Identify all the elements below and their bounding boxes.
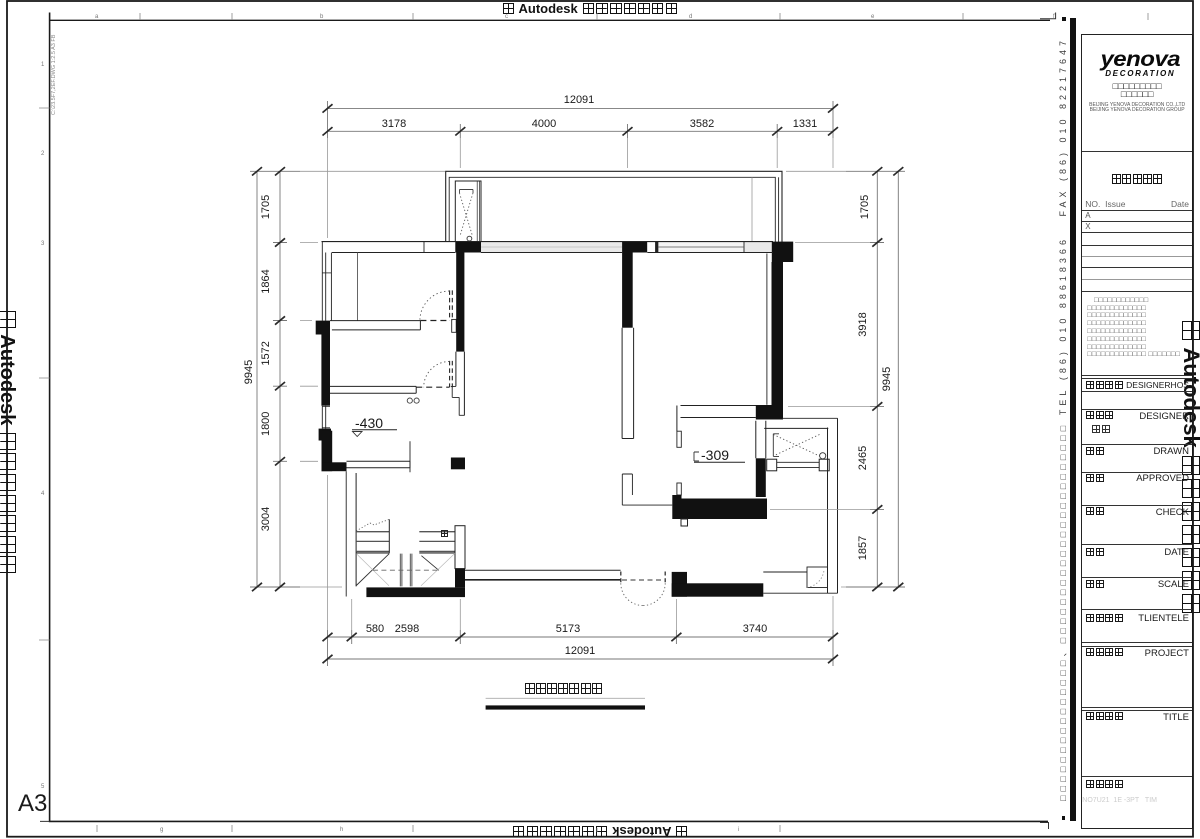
svg-text:2: 2 bbox=[41, 151, 45, 157]
svg-text:1: 1 bbox=[41, 62, 45, 68]
svg-text:1331: 1331 bbox=[793, 118, 817, 130]
svg-text:d: d bbox=[689, 14, 692, 20]
svg-text:-430: -430 bbox=[355, 415, 383, 431]
svg-text:2598: 2598 bbox=[395, 623, 419, 635]
svg-text:12091: 12091 bbox=[565, 645, 596, 657]
svg-text:5173: 5173 bbox=[556, 623, 580, 635]
svg-text:3918: 3918 bbox=[857, 312, 869, 336]
svg-text:g: g bbox=[160, 827, 163, 833]
svg-text:3740: 3740 bbox=[743, 623, 767, 635]
svg-text:-309: -309 bbox=[701, 447, 729, 463]
svg-text:3: 3 bbox=[41, 241, 45, 247]
svg-text:1857: 1857 bbox=[857, 536, 869, 560]
svg-text:a: a bbox=[95, 14, 99, 20]
svg-text:12091: 12091 bbox=[564, 94, 595, 106]
svg-text:1864: 1864 bbox=[260, 269, 272, 293]
svg-text:c: c bbox=[505, 14, 508, 20]
svg-text:3582: 3582 bbox=[690, 118, 714, 130]
svg-text:580: 580 bbox=[366, 623, 384, 635]
svg-text:3178: 3178 bbox=[382, 118, 406, 130]
svg-text:C:\23.5F7,2EF.DWG 1:2.5 A3 FB: C:\23.5F7,2EF.DWG 1:2.5 A3 FB bbox=[51, 34, 57, 115]
svg-text:2465: 2465 bbox=[857, 446, 869, 470]
svg-text:4: 4 bbox=[41, 491, 45, 497]
svg-text:A3: A3 bbox=[18, 790, 47, 817]
svg-text:1705: 1705 bbox=[859, 195, 871, 219]
svg-text:h: h bbox=[340, 827, 343, 833]
svg-text:4000: 4000 bbox=[532, 118, 556, 130]
svg-text:9945: 9945 bbox=[243, 360, 255, 384]
svg-text:1705: 1705 bbox=[260, 195, 272, 219]
svg-text:b: b bbox=[320, 14, 324, 20]
svg-text:3004: 3004 bbox=[260, 507, 272, 531]
svg-text:1800: 1800 bbox=[260, 412, 272, 436]
svg-text:9945: 9945 bbox=[881, 367, 893, 391]
svg-text:i: i bbox=[738, 827, 739, 833]
svg-text:e: e bbox=[871, 14, 875, 20]
svg-text:1572: 1572 bbox=[260, 341, 272, 365]
